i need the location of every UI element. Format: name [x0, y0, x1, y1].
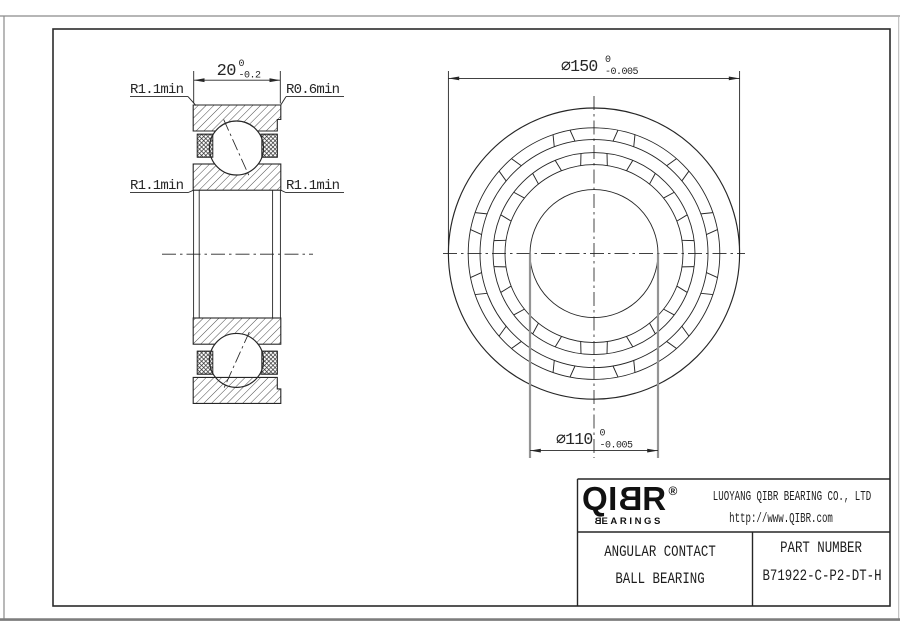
part-number-value: B71922-C-P2-DT-H	[710, 569, 900, 585]
company-logo: QIBR®	[582, 482, 676, 515]
logo-sub-b-mirrored: B	[592, 517, 601, 527]
label-r-top-right: R0.6min	[286, 82, 340, 98]
outer-ring-bottom-section	[193, 377, 281, 403]
front-view	[443, 96, 745, 458]
dim-bore-value: ⌀110	[556, 430, 592, 449]
dim-od-lower-tol: -0.005	[605, 67, 639, 78]
dim-width-value: 20	[217, 62, 237, 81]
dim-od-value: ⌀150	[561, 57, 597, 76]
dimension-width: 20 0 -0.2	[194, 59, 281, 104]
label-r-mid-right: R1.1min	[286, 178, 340, 194]
dim-od-upper-tol: 0	[605, 55, 611, 66]
cage-bottom-left	[197, 351, 213, 374]
registered-trademark-symbol: ®	[669, 484, 678, 498]
cage-top-right	[262, 134, 278, 157]
logo-sub-rest: EARINGS	[601, 516, 662, 527]
company-website: http://www.QIBR.com	[690, 512, 872, 526]
part-number-label: PART NUMBER	[709, 541, 900, 557]
logo-subtext: BEARINGS	[592, 517, 663, 527]
sheet-borders	[0, 16, 900, 620]
dim-width-lower-tol: -0.2	[239, 71, 262, 82]
dim-bore-lower-tol: -0.005	[600, 441, 634, 452]
drawing-sheet: 20 0 -0.2 R1.1min R0.6min R1.1min R1.1mi…	[0, 0, 900, 636]
label-r-mid-left: R1.1min	[130, 178, 184, 194]
logo-r: R	[642, 480, 666, 517]
logo-qi: QI	[582, 480, 618, 517]
label-r-top-left: R1.1min	[130, 82, 184, 98]
cage-top-left	[197, 134, 213, 157]
section-view	[162, 105, 313, 403]
company-name: LUOYANG QIBR BEARING CO., LTD	[701, 490, 883, 504]
logo-b-mirrored: B	[618, 482, 642, 515]
dim-width-upper-tol: 0	[239, 59, 245, 70]
dim-bore-upper-tol: 0	[600, 429, 606, 440]
cage-bottom-right	[262, 351, 278, 374]
